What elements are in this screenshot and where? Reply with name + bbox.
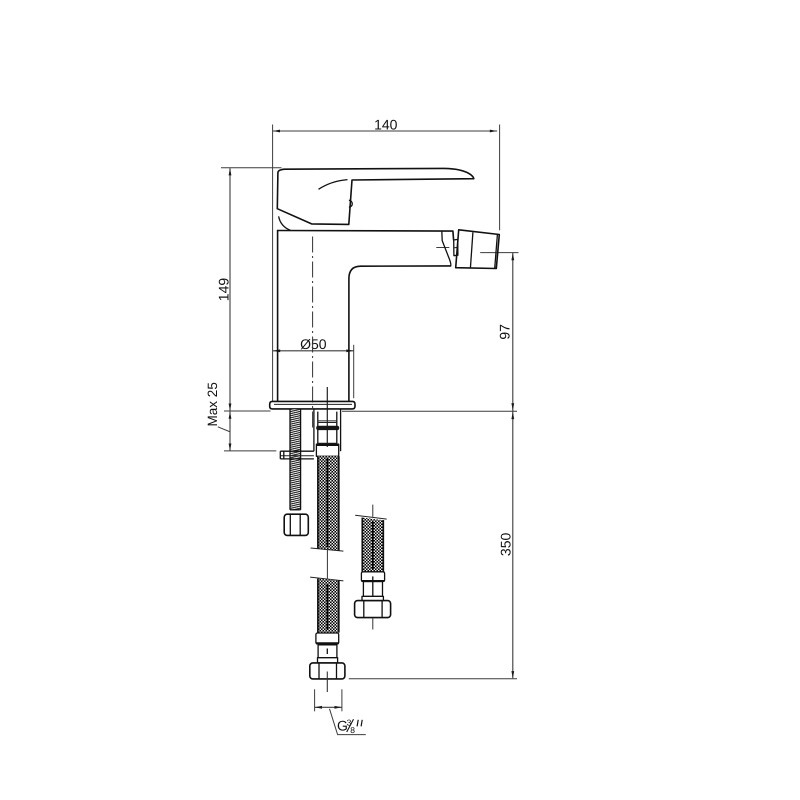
svg-text:Max 25: Max 25 <box>205 382 220 426</box>
svg-text:140: 140 <box>374 117 398 133</box>
svg-text:149: 149 <box>215 278 231 302</box>
svg-text:350: 350 <box>497 533 513 557</box>
svg-text:8: 8 <box>350 725 355 735</box>
svg-text:Ø50: Ø50 <box>300 336 327 352</box>
svg-text:97: 97 <box>496 324 512 340</box>
